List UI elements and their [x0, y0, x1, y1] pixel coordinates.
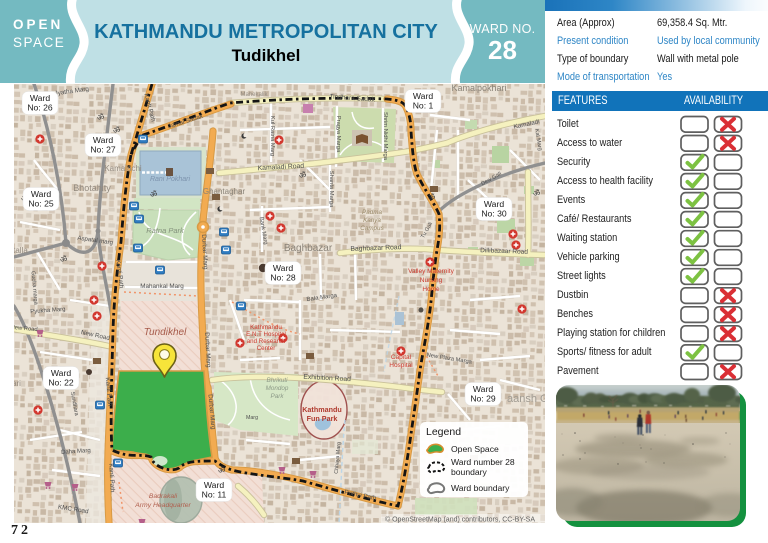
svg-text:antalla: antalla: [14, 246, 28, 255]
svg-text:Kathmandu: Kathmandu: [302, 405, 342, 414]
svg-text:© OpenStreetMap (and) contribu: © OpenStreetMap (and) contributors, CC-B…: [385, 516, 535, 524]
svg-text:Ward: Ward: [31, 189, 51, 199]
svg-text:ॐ: ॐ: [299, 171, 306, 180]
svg-text:No: 11: No: 11: [202, 490, 227, 500]
svg-text:Legend: Legend: [426, 426, 461, 438]
svg-text:ॐ: ॐ: [97, 113, 104, 122]
svg-text:ॐ: ॐ: [533, 189, 540, 198]
svg-text:Ward: Ward: [93, 135, 113, 145]
svg-text:boundary: boundary: [451, 467, 488, 477]
svg-text:Fun Park: Fun Park: [307, 414, 338, 423]
svg-text:Kanya: Kanya: [363, 217, 381, 224]
svg-text:Ward: Ward: [30, 93, 50, 103]
svg-text:Kamalachi: Kamalachi: [104, 164, 142, 173]
svg-text:No: 27: No: 27: [90, 145, 116, 155]
svg-text:No: 25: No: 25: [28, 199, 54, 209]
svg-text:No: 29: No: 29: [470, 394, 496, 404]
svg-text:ॐ: ॐ: [150, 190, 157, 199]
svg-text:Campus: Campus: [360, 225, 384, 232]
svg-text:Pragya Marga: Pragya Marga: [335, 116, 341, 153]
svg-text:Home: Home: [422, 286, 440, 293]
svg-text:No: 28: No: 28: [270, 273, 296, 283]
svg-text:and Research: and Research: [247, 338, 286, 345]
svg-text:Shrim Nidhi Marga: Shrim Nidhi Marga: [382, 112, 388, 161]
svg-text:ॐ: ॐ: [428, 193, 435, 202]
svg-text:ॐ: ॐ: [60, 255, 67, 264]
svg-text:Park: Park: [271, 393, 285, 400]
svg-text:okhari: okhari: [14, 379, 21, 388]
svg-text:Ghantaghar: Ghantaghar: [203, 187, 246, 196]
svg-text:Marg: Marg: [246, 415, 258, 421]
svg-text:No: 22: No: 22: [48, 378, 74, 388]
svg-text:ॐ: ॐ: [218, 466, 225, 475]
svg-text:Ward boundary: Ward boundary: [451, 483, 510, 493]
svg-text:Baghbazar: Baghbazar: [284, 243, 333, 254]
svg-text:Ratna Park: Ratna Park: [146, 226, 185, 235]
svg-text:Ward: Ward: [204, 480, 224, 490]
svg-text:Ward: Ward: [51, 368, 71, 378]
svg-text:Capital: Capital: [391, 354, 412, 361]
svg-text:Tundikhel: Tundikhel: [144, 327, 187, 338]
svg-text:aansh G: aansh G: [507, 393, 545, 405]
svg-text:Bhotahity: Bhotahity: [73, 183, 111, 193]
svg-text:Mahankal Marg: Mahankal Marg: [140, 283, 184, 290]
svg-text:Rani Pokhari: Rani Pokhari: [150, 176, 191, 183]
svg-text:Mondop: Mondop: [266, 385, 289, 392]
svg-text:Valley Maternity: Valley Maternity: [408, 268, 455, 275]
svg-text:No: 1: No: 1: [413, 101, 434, 111]
svg-text:No: 26: No: 26: [27, 103, 53, 113]
svg-text:Open Space: Open Space: [451, 444, 499, 454]
svg-text:No: 30: No: 30: [481, 209, 507, 219]
svg-text:Bhrikuti: Bhrikuti: [267, 377, 289, 384]
svg-text:Kathmandu: Kathmandu: [250, 324, 282, 331]
svg-text:Center: Center: [257, 345, 276, 352]
svg-text:Ward number 28: Ward number 28: [451, 457, 515, 467]
svg-text:Shanta Marga: Shanta Marga: [328, 171, 334, 208]
svg-text:Ward: Ward: [484, 199, 504, 209]
svg-text:Kul Ratna Marg: Kul Ratna Marg: [269, 116, 275, 156]
svg-text:Ward: Ward: [413, 91, 433, 101]
svg-text:Ward: Ward: [473, 384, 493, 394]
svg-text:E.N.T Hospital: E.N.T Hospital: [246, 331, 286, 338]
svg-text:Mahekalik: Mahekalik: [240, 92, 268, 98]
svg-text:Hospital: Hospital: [389, 362, 413, 369]
svg-text:Nursing: Nursing: [420, 277, 443, 284]
svg-text:Kamalpokhari: Kamalpokhari: [451, 84, 506, 93]
svg-text:Badrakali: Badrakali: [149, 493, 178, 500]
svg-text:Padma: Padma: [362, 209, 382, 216]
svg-text:Army Headquarter: Army Headquarter: [134, 502, 191, 509]
svg-text:Ward: Ward: [273, 263, 293, 273]
